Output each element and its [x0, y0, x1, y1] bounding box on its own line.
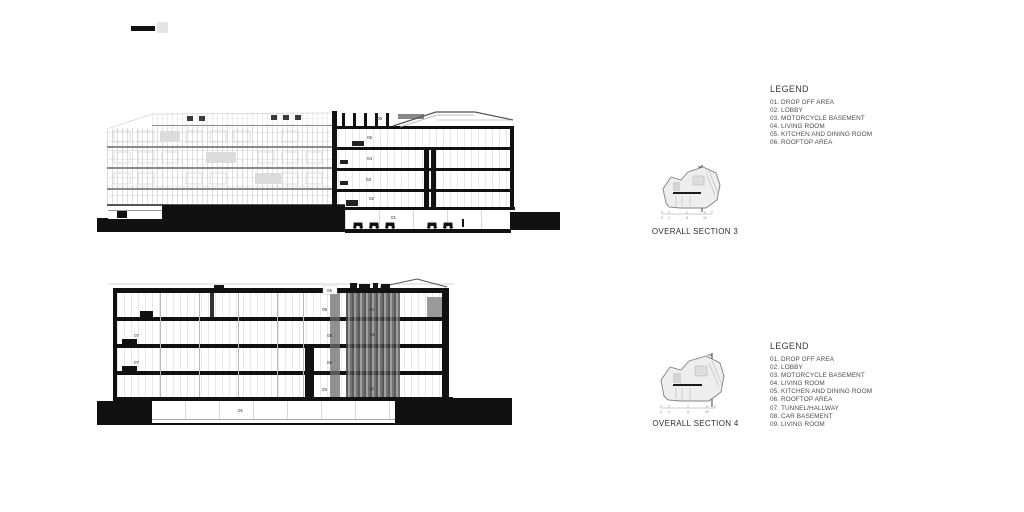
section4-caption: OVERALL SECTION 4 [648, 419, 743, 428]
legend-title: LEGEND [770, 341, 970, 351]
basement-line [117, 419, 395, 420]
legend-section4: LEGEND 01. DROP OFF AREA 02. LOBBY 03. M… [770, 341, 970, 429]
legend-section3: LEGEND 01. DROP OFF AREA 02. LOBBY 03. M… [770, 84, 970, 148]
legend-item: 09. LIVING ROOM [770, 421, 970, 429]
ground-poche [395, 398, 512, 424]
legend-item: 05. KITCHEN AND DINING ROOM [770, 388, 970, 396]
bay-line [277, 293, 278, 397]
core-pier [305, 345, 314, 401]
column [210, 293, 214, 317]
legend-item: 05. KITCHEN AND DINING ROOM [770, 131, 970, 139]
legend-item: 02. LOBBY [770, 107, 970, 115]
section3-caption: OVERALL SECTION 3 [649, 227, 741, 236]
drawing-sheet: 06 05 04 03 02 01 06 09 04 08 05 06 07 0… [0, 0, 1024, 512]
section4-drawing [0, 0, 1024, 512]
cut-wall [442, 288, 449, 401]
legend-item: 06. ROOFTOP AREA [770, 396, 970, 404]
furniture-mark [122, 339, 137, 344]
bay-line [160, 293, 161, 397]
bay-line [238, 293, 239, 397]
legend-item: 04. LIVING ROOM [770, 380, 970, 388]
legend-item: 01. DROP OFF AREA [770, 356, 970, 364]
legend-item: 02. LOBBY [770, 364, 970, 372]
legend-item: 07. TUNNEL/HALLWAY [770, 405, 970, 413]
basement-strip [117, 401, 395, 420]
ground-line [97, 423, 512, 425]
bay-line [199, 293, 200, 397]
legend-title: LEGEND [770, 84, 970, 94]
core-shaft [346, 293, 400, 397]
legend-item: 04. LIVING ROOM [770, 123, 970, 131]
furniture-mark [140, 311, 153, 317]
legend-item: 06. ROOFTOP AREA [770, 139, 970, 147]
shaded-bay [427, 297, 442, 317]
bay-line [303, 293, 304, 397]
legend-item: 01. DROP OFF AREA [770, 99, 970, 107]
ground-poche [97, 401, 152, 424]
legend-item: 03. MOTORCYCLE BASEMENT [770, 115, 970, 123]
legend-item: 08. CAR BASEMENT [770, 413, 970, 421]
core-pier [330, 293, 340, 397]
legend-item: 03. MOTORCYCLE BASEMENT [770, 372, 970, 380]
furniture-mark [122, 366, 137, 371]
